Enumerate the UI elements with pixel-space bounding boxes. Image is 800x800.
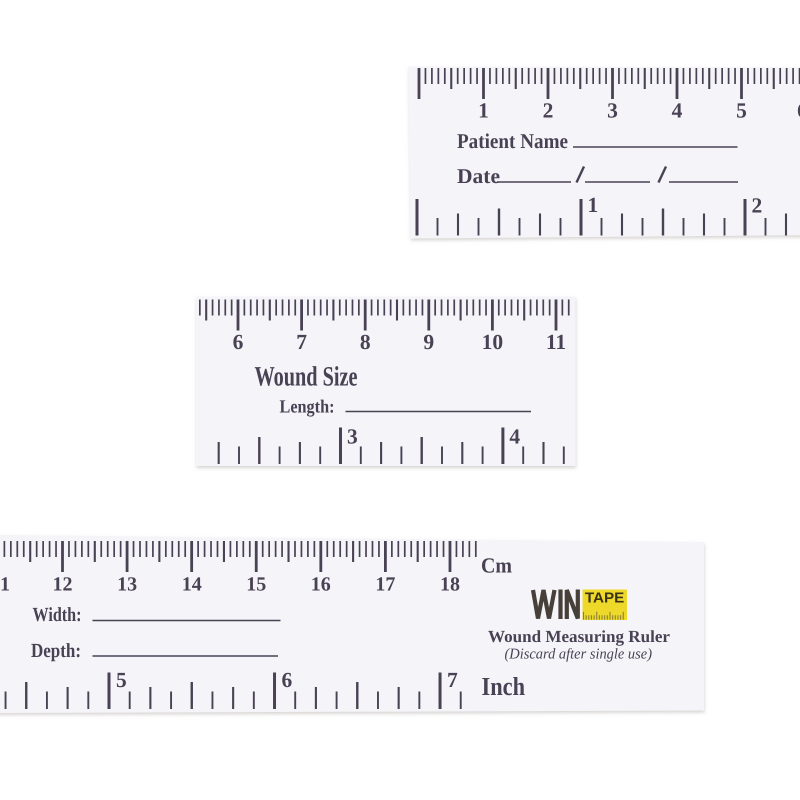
- svg-text:Cm: Cm: [481, 553, 512, 577]
- svg-text:18: 18: [440, 574, 460, 596]
- svg-text:Depth:: Depth:: [31, 640, 81, 662]
- svg-text:5: 5: [736, 99, 747, 123]
- svg-text:2: 2: [752, 194, 763, 218]
- svg-text:14: 14: [182, 574, 202, 596]
- svg-text:2: 2: [543, 99, 554, 123]
- svg-text:16: 16: [311, 574, 331, 596]
- svg-text:Date: Date: [457, 164, 500, 188]
- svg-text:4: 4: [509, 425, 520, 449]
- svg-text:Patient Name: Patient Name: [457, 129, 568, 153]
- svg-text:1: 1: [478, 99, 489, 123]
- svg-text:6: 6: [282, 668, 293, 692]
- svg-text:1: 1: [588, 193, 599, 217]
- svg-text:8: 8: [360, 330, 371, 354]
- svg-text:7: 7: [296, 330, 307, 354]
- svg-text:Length:: Length:: [280, 398, 335, 418]
- svg-text:10: 10: [482, 330, 504, 354]
- svg-text:11: 11: [0, 574, 10, 596]
- svg-text:7: 7: [447, 668, 458, 692]
- svg-text:Wound Measuring Ruler: Wound Measuring Ruler: [488, 627, 670, 646]
- svg-text:TAPE: TAPE: [585, 591, 625, 607]
- svg-text:Width:: Width:: [33, 604, 82, 626]
- svg-text:3: 3: [347, 425, 358, 449]
- svg-text:12: 12: [53, 574, 73, 596]
- svg-text:17: 17: [375, 574, 395, 596]
- svg-text:3: 3: [607, 99, 618, 123]
- svg-text:Wound Size: Wound Size: [255, 362, 358, 393]
- svg-text:5: 5: [116, 668, 127, 692]
- svg-text:13: 13: [117, 574, 137, 596]
- svg-text:6: 6: [233, 330, 244, 354]
- svg-text:15: 15: [246, 574, 266, 596]
- svg-text:11: 11: [546, 330, 566, 354]
- svg-text:Inch: Inch: [482, 672, 526, 701]
- svg-text:9: 9: [423, 330, 434, 354]
- svg-text:4: 4: [672, 99, 683, 123]
- svg-text:(Discard after single use): (Discard after single use): [505, 647, 653, 663]
